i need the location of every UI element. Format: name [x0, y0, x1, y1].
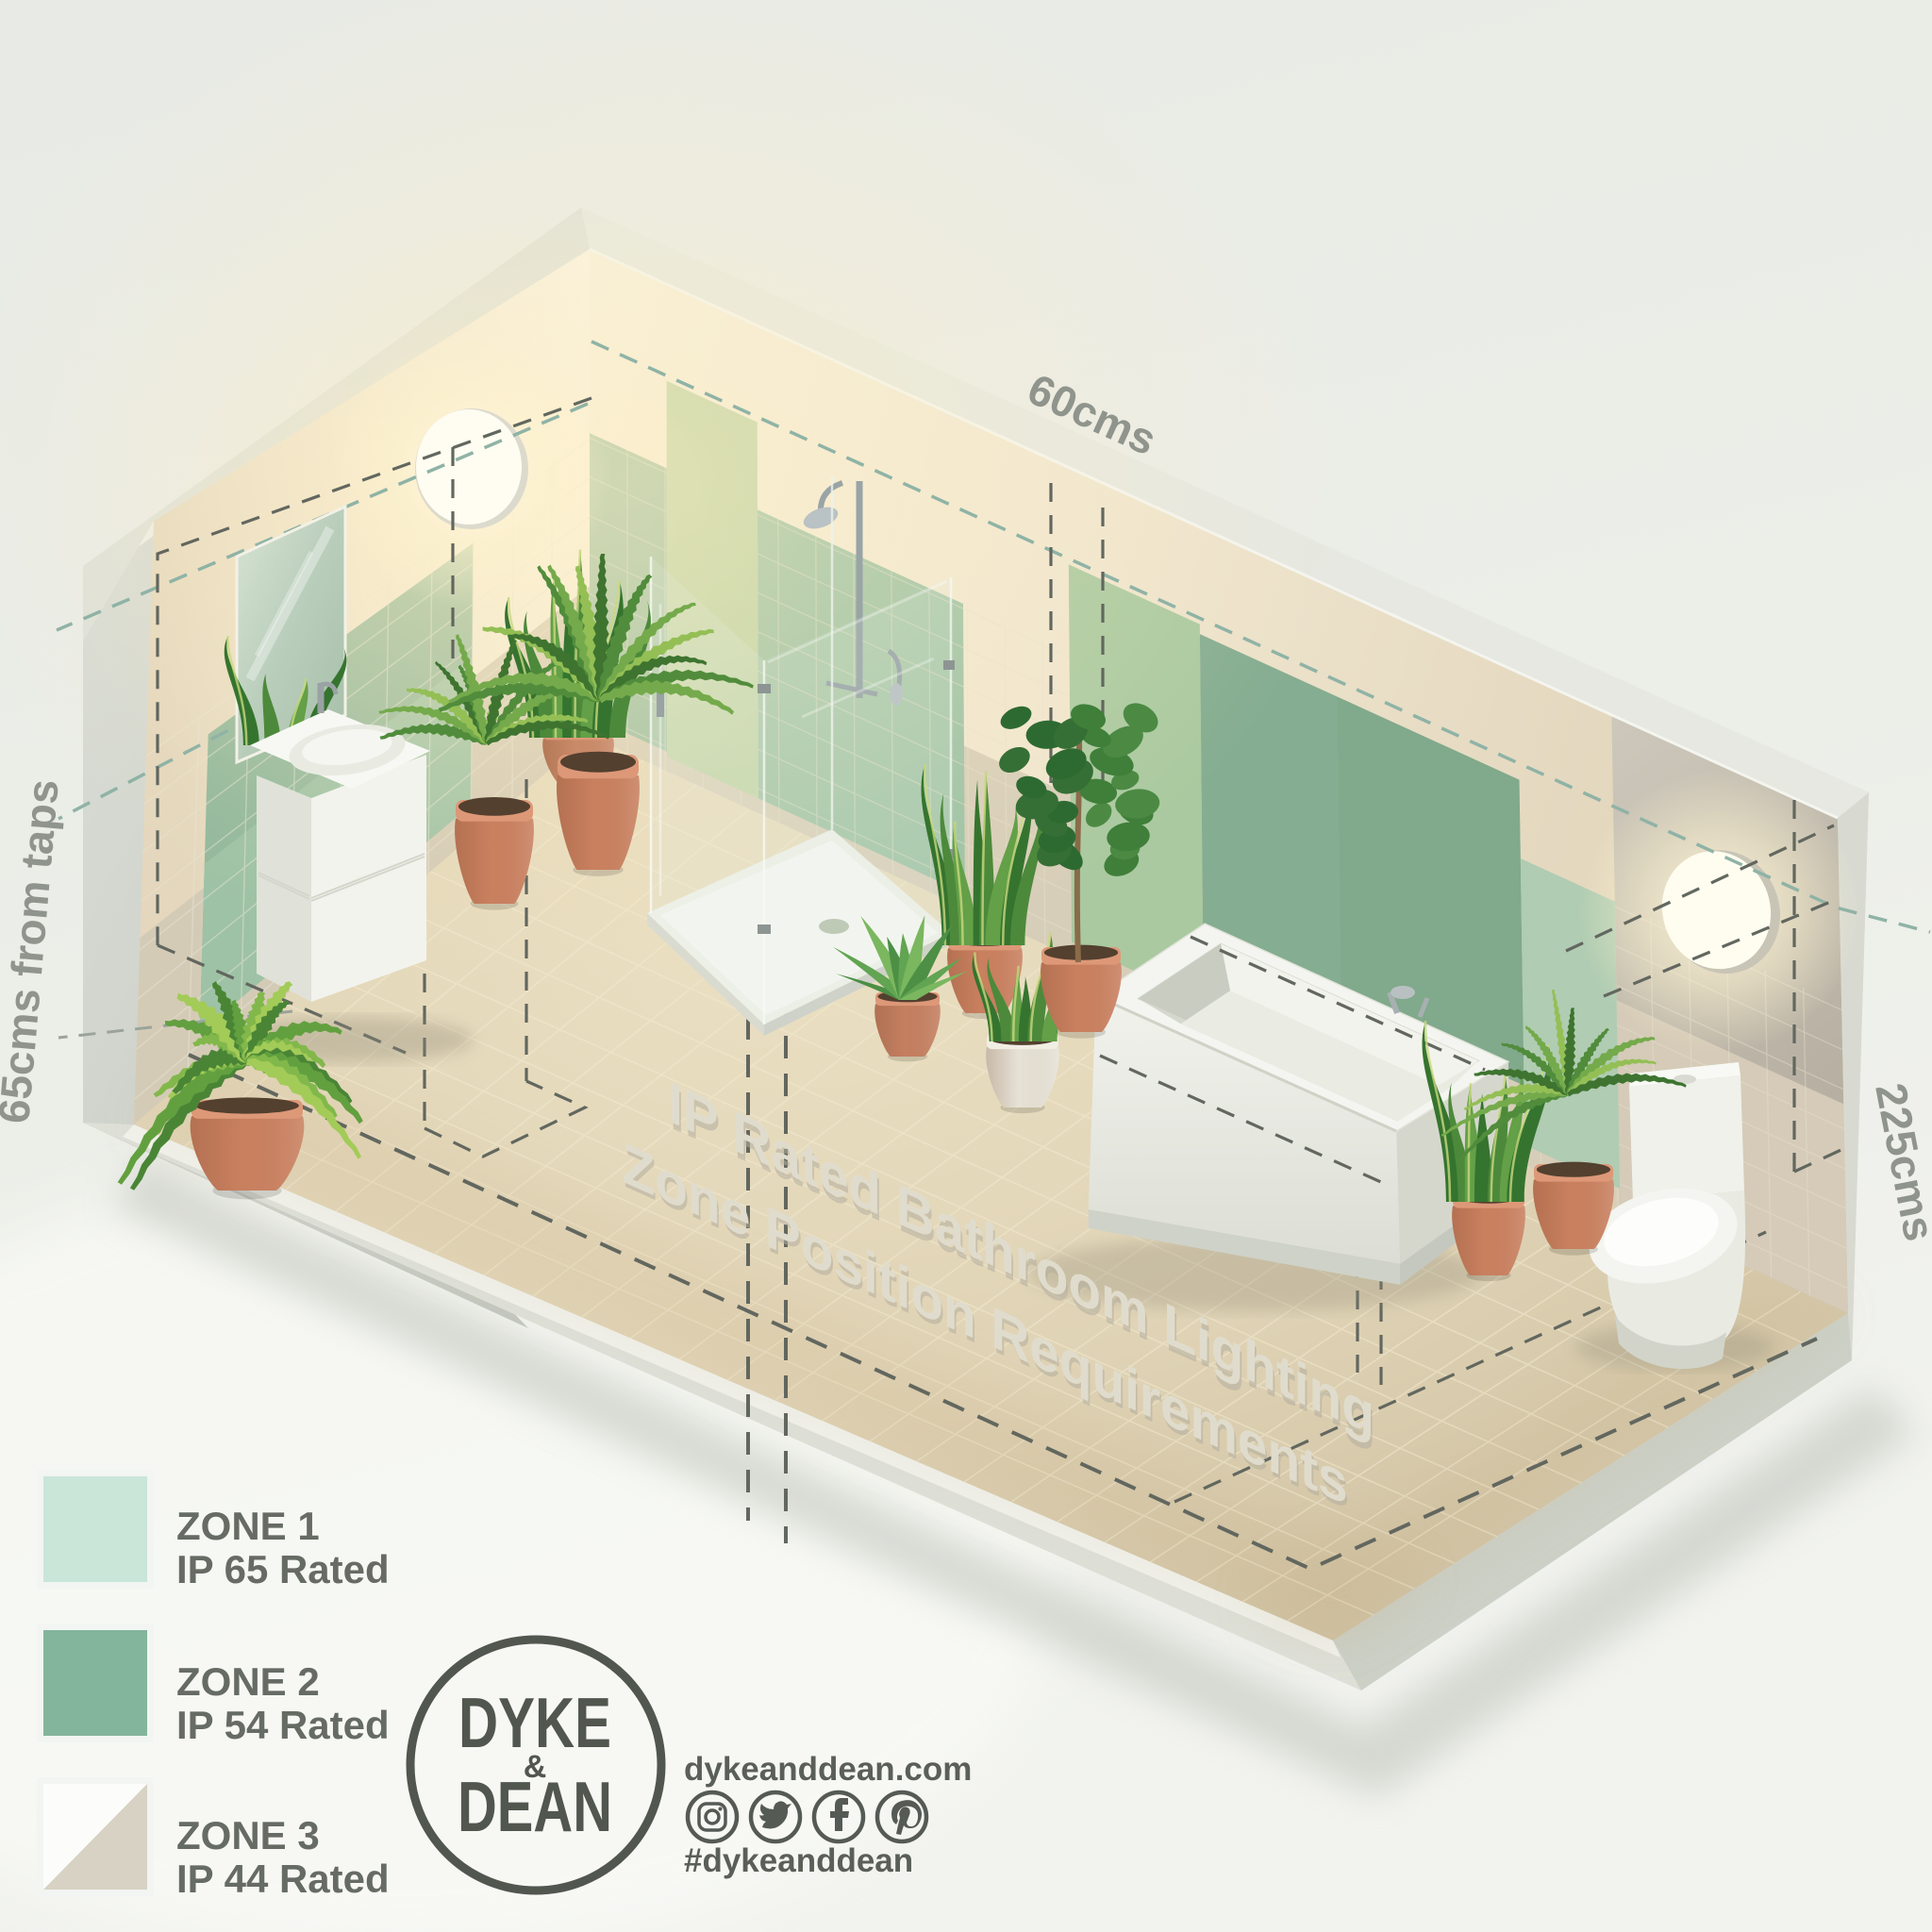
svg-text:#dykeanddean: #dykeanddean	[684, 1842, 913, 1879]
svg-text:IP 54 Rated: IP 54 Rated	[176, 1703, 390, 1747]
svg-text:DEAN: DEAN	[458, 1767, 612, 1846]
svg-text:ZONE 2: ZONE 2	[176, 1659, 320, 1704]
svg-text:dykeanddean.com: dykeanddean.com	[684, 1751, 972, 1788]
svg-text:IP 44 Rated: IP 44 Rated	[176, 1857, 390, 1901]
svg-text:IP 65 Rated: IP 65 Rated	[176, 1547, 390, 1591]
svg-text:ZONE 1: ZONE 1	[176, 1504, 320, 1548]
svg-text:ZONE 3: ZONE 3	[176, 1813, 320, 1857]
